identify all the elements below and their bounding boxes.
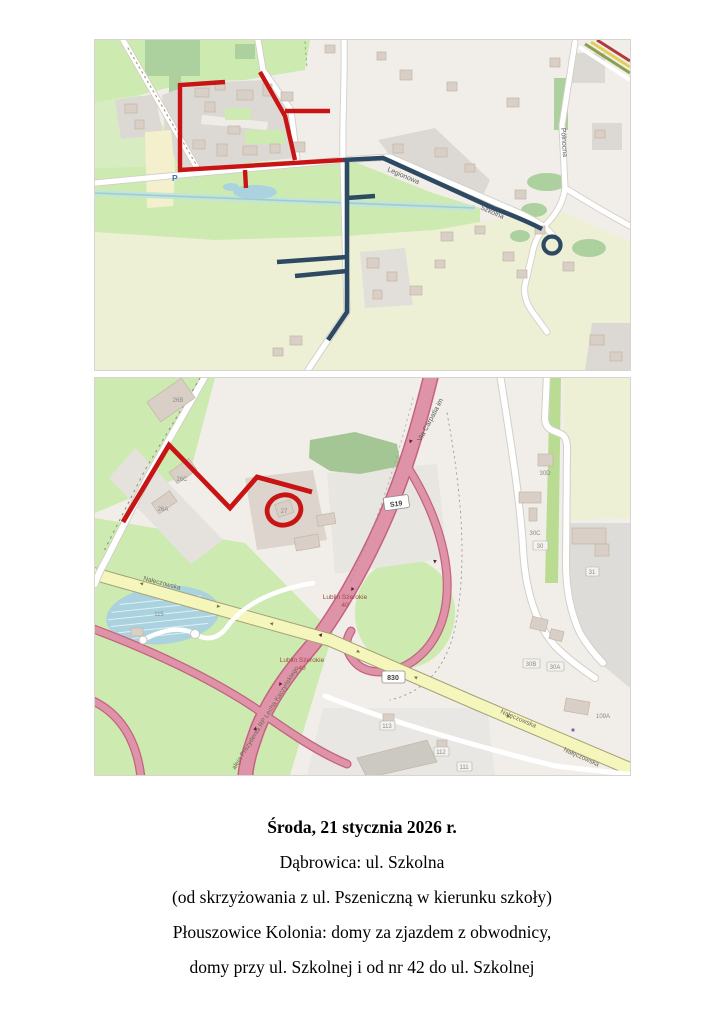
bldg-30b: 30B bbox=[526, 662, 537, 668]
map-dabrowica: P Legionowa Szkolna Północna bbox=[95, 40, 630, 370]
bldg-30: 30 bbox=[537, 544, 544, 550]
poi-dot bbox=[571, 728, 574, 731]
notice-date-title: Środa, 21 stycznia 2026 r. bbox=[0, 810, 724, 845]
bldg-30d: 30D bbox=[539, 471, 551, 477]
map-plouszowice-canvas: S19 830 Via Carpatia im aleja Prezydenta… bbox=[95, 378, 630, 775]
bldg-26b: 26B bbox=[173, 398, 184, 404]
bus-stop-2-ref: 40 bbox=[298, 665, 306, 672]
bldg-26c: 26C bbox=[176, 477, 188, 483]
map-dabrowica-canvas: P Legionowa Szkolna Północna bbox=[95, 40, 630, 370]
pond-small bbox=[233, 185, 277, 199]
notice-block: Środa, 21 stycznia 2026 r. Dąbrowica: ul… bbox=[0, 810, 724, 985]
pond-ref-label: 115 bbox=[154, 612, 164, 618]
notice-line-2: (od skrzyżowania z ul. Pszeniczną w kier… bbox=[0, 880, 724, 915]
bldg-111: 111 bbox=[459, 765, 469, 771]
bldg-30a: 30A bbox=[550, 665, 561, 671]
bldg-112: 112 bbox=[436, 750, 446, 756]
bldg-26a: 26A bbox=[158, 507, 169, 513]
bldg-30c: 30C bbox=[529, 531, 541, 537]
bldg-27: 27 bbox=[281, 509, 288, 515]
shield-830: 830 bbox=[387, 675, 399, 682]
map-plouszowice: S19 830 Via Carpatia im aleja Prezydenta… bbox=[95, 378, 630, 775]
bus-stop-1-ref: 40 bbox=[341, 602, 349, 609]
notice-line-1: Dąbrowica: ul. Szkolna bbox=[0, 845, 724, 880]
notice-line-3: Płouszowice Kolonia: domy za zjazdem z o… bbox=[0, 915, 724, 950]
bldg-109a: 109A bbox=[596, 714, 610, 720]
parking-icon: P bbox=[172, 173, 178, 183]
bldg-113: 113 bbox=[382, 724, 392, 730]
bldg-31: 31 bbox=[589, 570, 596, 576]
bus-stop-1-name: Lublin Szerokie bbox=[323, 594, 368, 601]
notice-line-4: domy przy ul. Szkolnej i od nr 42 do ul.… bbox=[0, 950, 724, 985]
bus-stop-2-name: Lublin Szerokie bbox=[280, 657, 325, 664]
